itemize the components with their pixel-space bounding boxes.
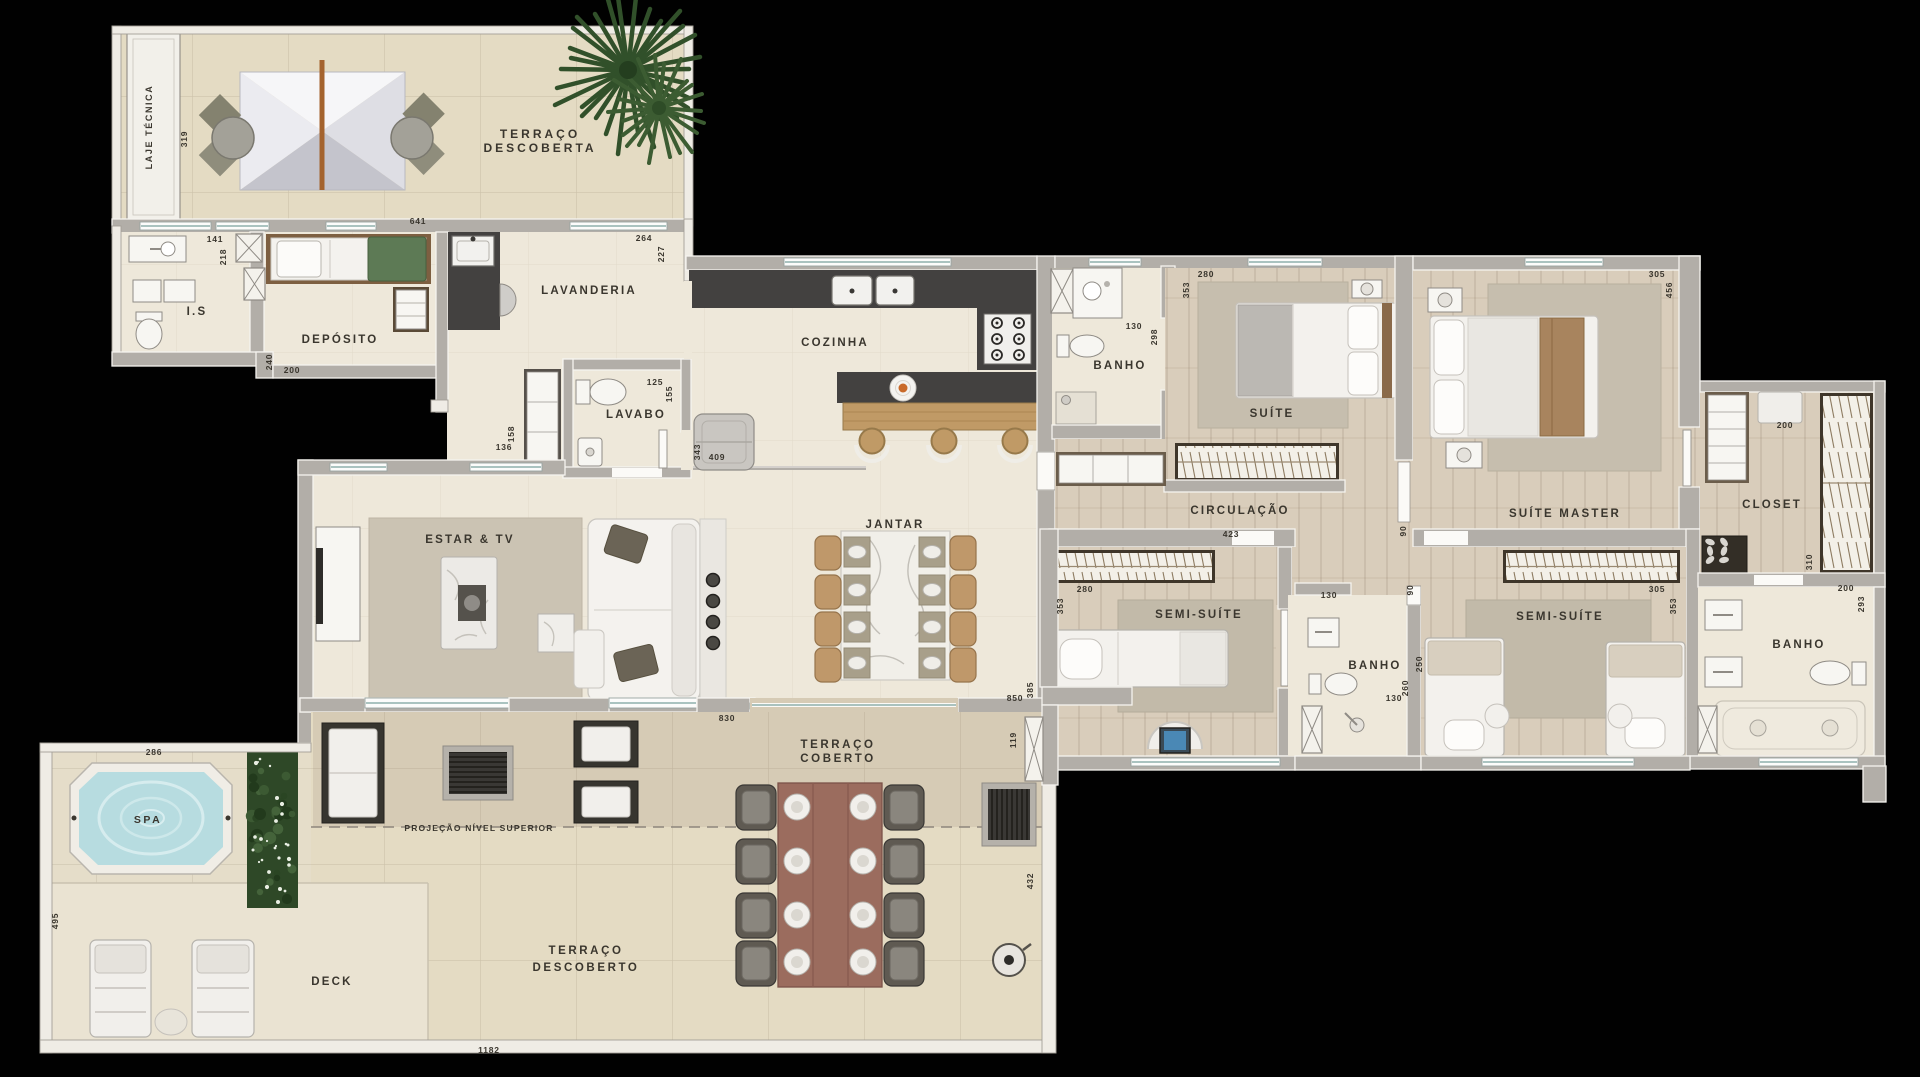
- svg-text:DEPÓSITO: DEPÓSITO: [302, 333, 379, 346]
- svg-text:240: 240: [264, 354, 274, 371]
- svg-text:119: 119: [1008, 732, 1018, 748]
- svg-text:343: 343: [692, 444, 702, 461]
- svg-text:SEMI-SUÍTE: SEMI-SUÍTE: [1516, 610, 1604, 623]
- svg-text:286: 286: [146, 747, 163, 757]
- svg-text:432: 432: [1025, 873, 1035, 890]
- svg-text:141: 141: [207, 234, 224, 244]
- svg-text:264: 264: [636, 233, 653, 243]
- svg-text:90: 90: [1405, 584, 1415, 595]
- svg-text:305: 305: [1649, 584, 1666, 594]
- svg-text:DECK: DECK: [311, 976, 352, 988]
- svg-text:353: 353: [1055, 598, 1065, 615]
- svg-text:293: 293: [1856, 596, 1866, 613]
- svg-text:COZINHA: COZINHA: [801, 337, 869, 349]
- svg-text:ESTAR & TV: ESTAR & TV: [425, 534, 515, 546]
- svg-text:DESCOBERTA: DESCOBERTA: [483, 141, 596, 155]
- svg-text:158: 158: [506, 426, 516, 443]
- svg-text:353: 353: [1668, 598, 1678, 615]
- svg-text:90: 90: [1398, 525, 1408, 536]
- svg-text:319: 319: [179, 131, 189, 148]
- svg-text:830: 830: [719, 713, 736, 723]
- svg-text:SEMI-SUÍTE: SEMI-SUÍTE: [1155, 608, 1243, 621]
- svg-text:200: 200: [284, 365, 301, 375]
- svg-text:305: 305: [1649, 269, 1666, 279]
- svg-text:LAVANDERIA: LAVANDERIA: [541, 285, 637, 297]
- svg-text:CLOSET: CLOSET: [1742, 499, 1802, 511]
- svg-text:280: 280: [1077, 584, 1094, 594]
- svg-text:353: 353: [1181, 282, 1191, 299]
- svg-text:280: 280: [1198, 269, 1215, 279]
- svg-text:495: 495: [50, 913, 60, 930]
- svg-text:PROJEÇÃO NÍVEL SUPERIOR: PROJEÇÃO NÍVEL SUPERIOR: [404, 823, 553, 833]
- svg-text:409: 409: [709, 452, 726, 462]
- svg-text:LAJE TÉCNICA: LAJE TÉCNICA: [144, 85, 154, 170]
- svg-text:385: 385: [1025, 682, 1035, 699]
- svg-text:BANHO: BANHO: [1772, 639, 1825, 651]
- svg-text:125: 125: [647, 377, 664, 387]
- svg-text:1182: 1182: [478, 1045, 500, 1055]
- svg-text:310: 310: [1804, 554, 1814, 571]
- svg-text:BANHO: BANHO: [1093, 360, 1146, 372]
- svg-text:641: 641: [410, 216, 427, 226]
- svg-text:TERRAÇO: TERRAÇO: [548, 945, 623, 957]
- svg-text:850: 850: [1007, 693, 1024, 703]
- svg-text:250: 250: [1414, 656, 1424, 673]
- svg-text:BANHO: BANHO: [1348, 660, 1401, 672]
- svg-text:130: 130: [1321, 590, 1338, 600]
- svg-text:218: 218: [218, 249, 228, 266]
- svg-text:LAVABO: LAVABO: [606, 409, 666, 421]
- svg-text:200: 200: [1838, 583, 1855, 593]
- svg-text:298: 298: [1149, 329, 1159, 346]
- svg-text:155: 155: [664, 386, 674, 403]
- svg-text:136: 136: [496, 442, 513, 452]
- svg-text:SUÍTE MASTER: SUÍTE MASTER: [1509, 507, 1621, 520]
- svg-text:423: 423: [1223, 529, 1240, 539]
- svg-text:TERRAÇO: TERRAÇO: [500, 127, 580, 141]
- svg-text:200: 200: [1777, 420, 1794, 430]
- svg-text:SUÍTE: SUÍTE: [1250, 407, 1295, 420]
- svg-text:SPA: SPA: [134, 814, 162, 826]
- svg-text:TERRAÇO: TERRAÇO: [800, 739, 875, 751]
- svg-text:JANTAR: JANTAR: [866, 519, 925, 531]
- svg-text:456: 456: [1664, 282, 1674, 299]
- svg-text:I.S: I.S: [187, 306, 208, 318]
- svg-text:227: 227: [656, 246, 666, 263]
- svg-text:260: 260: [1400, 680, 1410, 697]
- svg-text:COBERTO: COBERTO: [800, 753, 876, 765]
- svg-text:DESCOBERTO: DESCOBERTO: [533, 962, 640, 974]
- svg-text:CIRCULAÇÃO: CIRCULAÇÃO: [1190, 504, 1289, 517]
- svg-text:130: 130: [1126, 321, 1143, 331]
